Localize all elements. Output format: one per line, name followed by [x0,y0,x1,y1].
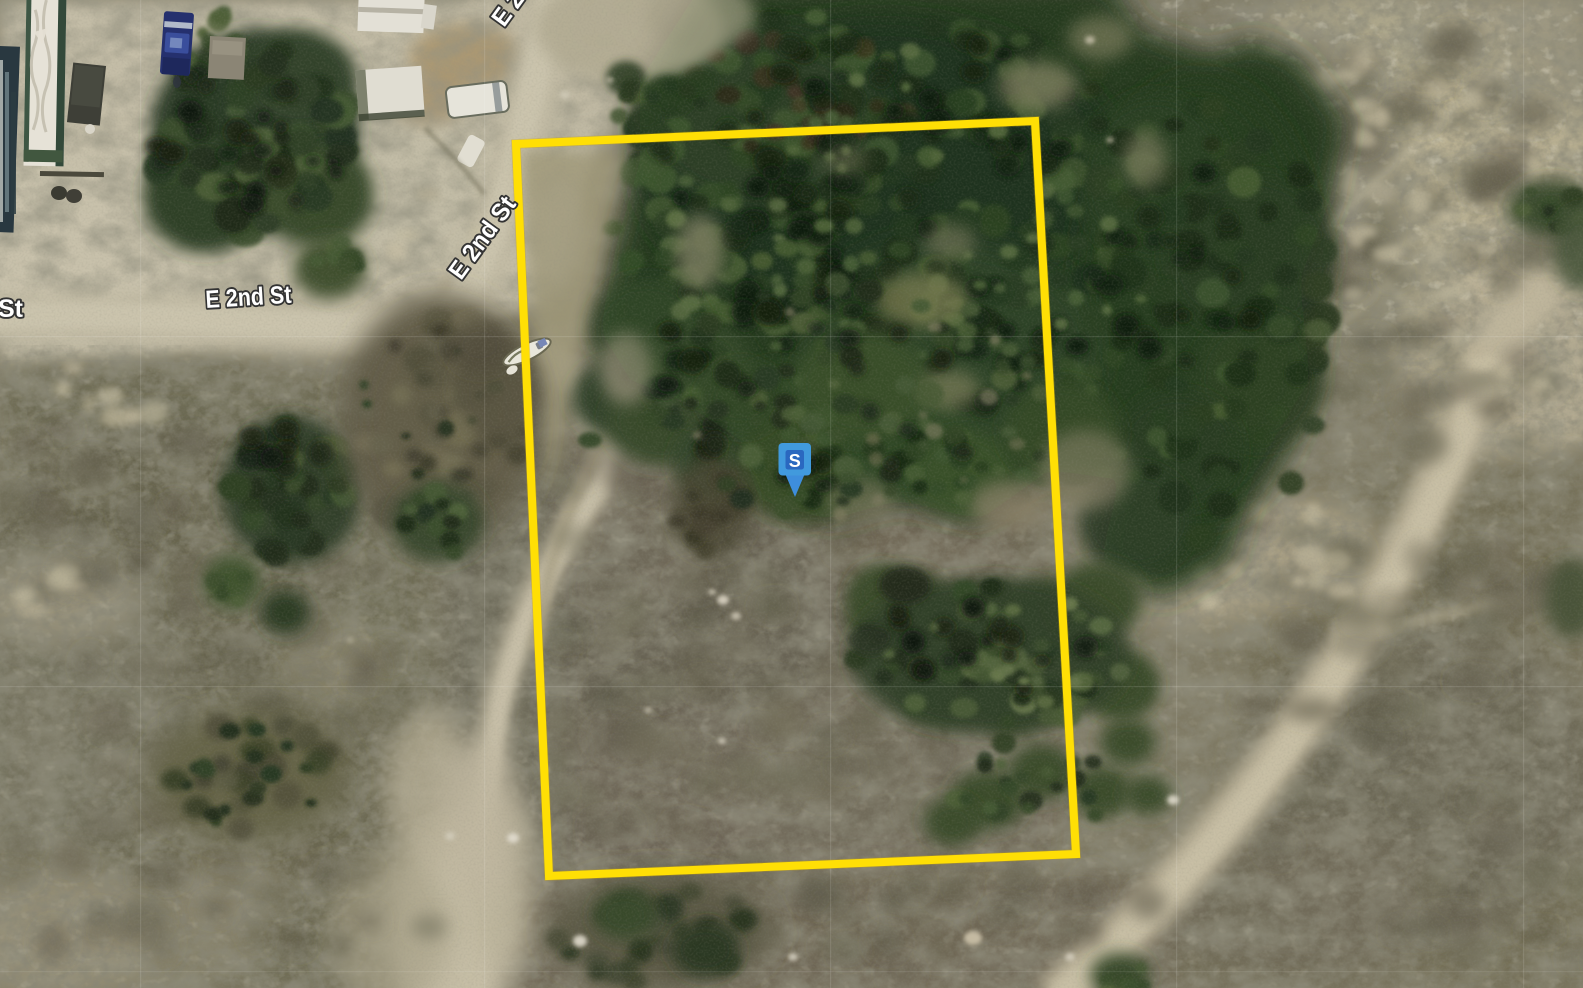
svg-text:St: St [0,295,24,323]
svg-text:E 2nd St: E 2nd St [205,281,293,314]
svg-text:S: S [789,451,801,471]
